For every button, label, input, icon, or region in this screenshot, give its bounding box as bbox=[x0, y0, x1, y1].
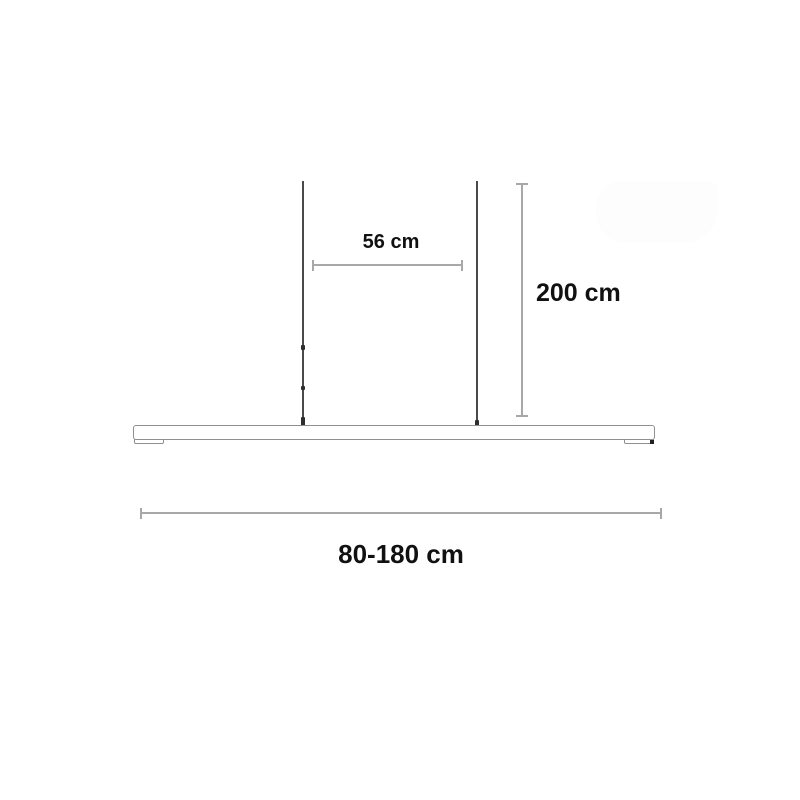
dimension-line bbox=[521, 183, 523, 417]
dimension-label-wire-spacing: 56 cm bbox=[316, 231, 466, 253]
dimension-line-suspension-height bbox=[516, 183, 528, 417]
wire-cable-knot bbox=[301, 345, 306, 350]
dimension-tick bbox=[461, 260, 463, 271]
wire-cable-knot bbox=[301, 386, 305, 390]
dimension-line-wire-spacing bbox=[312, 260, 463, 271]
dimension-line-bar-width bbox=[140, 508, 662, 519]
lamp-dimension-diagram: 56 cm 200 cm 80-180 cm bbox=[0, 0, 800, 800]
dimension-line bbox=[140, 512, 662, 514]
dimension-line bbox=[312, 264, 463, 266]
dimension-tick bbox=[516, 415, 528, 417]
lamp-endcap-right-detail bbox=[650, 440, 654, 444]
suspension-wire-right bbox=[476, 181, 478, 426]
dimension-label-suspension-height: 200 cm bbox=[536, 280, 656, 307]
dimension-label-bar-width: 80-180 cm bbox=[301, 540, 501, 568]
dimension-tick bbox=[660, 508, 662, 519]
faint-watermark-artifact bbox=[596, 181, 718, 243]
lamp-bar bbox=[133, 425, 655, 440]
